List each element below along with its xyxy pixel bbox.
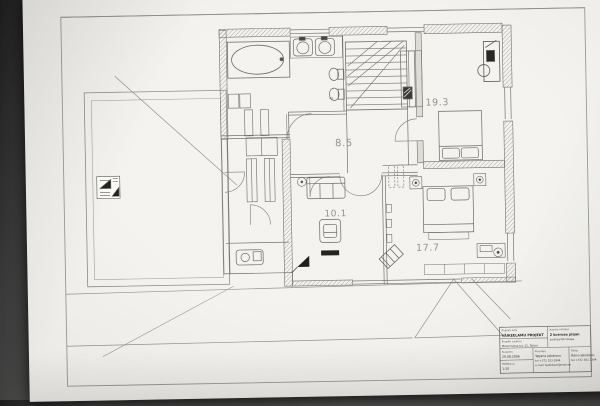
wardrobe-rails xyxy=(386,165,405,242)
client-phone: tel +372 501 2344 xyxy=(571,358,597,362)
roof-outline-below xyxy=(66,278,523,346)
date-label: Kuupäev xyxy=(502,350,513,354)
scale-value: 1:50 xyxy=(502,367,509,371)
washer-units xyxy=(228,94,250,108)
fireplace xyxy=(477,40,500,81)
sofa xyxy=(307,177,345,199)
photo-of-drawing: wc xyxy=(0,0,600,400)
room-area-label-hall: 8.5 xyxy=(335,138,353,149)
bed-se xyxy=(423,186,474,240)
room-area-label-bedroom-se: 17.7 xyxy=(416,242,440,253)
washbasins xyxy=(290,36,342,58)
room-area-label-bedroom-ne: 19.3 xyxy=(425,97,449,108)
armchair xyxy=(320,219,341,242)
project-label: Projekti nimi xyxy=(502,328,518,332)
staircase xyxy=(345,41,407,110)
washing-machine xyxy=(236,250,263,265)
wc-label: wc xyxy=(329,96,334,100)
tv-black-bar xyxy=(321,250,339,255)
toilet xyxy=(329,68,344,81)
shoe-rack xyxy=(379,245,403,269)
floor-plan-drawing: wc xyxy=(22,0,600,402)
room-area-label-living: 10.1 xyxy=(324,209,347,219)
date-value: 29.08.2006 xyxy=(502,354,520,358)
windows xyxy=(290,26,514,285)
side-table xyxy=(297,177,306,186)
project-name: VÄIKEELAMU PROJEKT xyxy=(502,332,545,338)
window-bench xyxy=(424,263,504,274)
scale-label: Mõõtkava xyxy=(502,362,515,366)
drawing-name-line2: sanitaartehnikaga xyxy=(550,337,575,341)
terrace-roof-outline xyxy=(84,74,240,357)
bed-ne xyxy=(439,111,483,161)
author-email: e-mail: tjakobson@mail.ee xyxy=(535,362,571,367)
drawing-label: Joonise nimetus xyxy=(549,327,571,331)
closet-shelves xyxy=(244,109,278,202)
project-address: Männimetsa tee 15, Tallinn xyxy=(502,343,539,348)
title-block: Projekti nimi VÄIKEELAMU PROJEKT Projekt… xyxy=(500,326,597,374)
author-label: Koostaja xyxy=(535,349,546,353)
bathtub xyxy=(227,41,290,78)
client-label: Tellija xyxy=(571,348,578,352)
desk-and-chair xyxy=(477,243,505,258)
nightstand-left xyxy=(410,177,422,189)
drawing-sheet: wc xyxy=(22,0,600,402)
elevation-marker-symbol xyxy=(97,176,120,198)
nightstand-right xyxy=(474,174,486,186)
section-marker xyxy=(291,256,309,273)
